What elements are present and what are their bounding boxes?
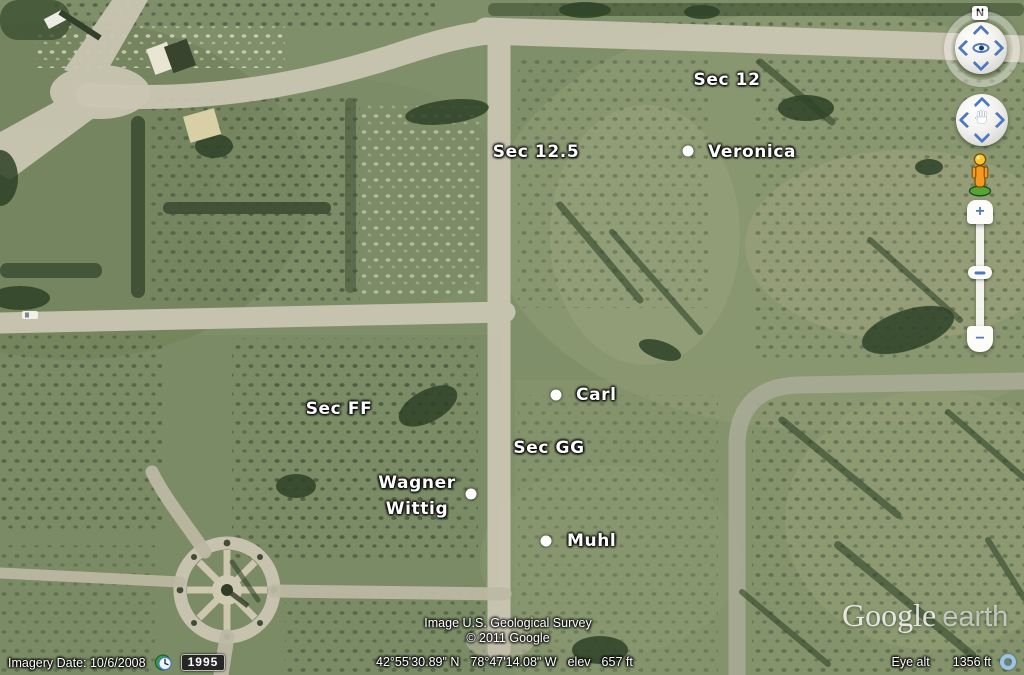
eye-alt-label: Eye alt (892, 655, 930, 669)
look-up-arrow-icon[interactable] (973, 25, 990, 42)
look-down-arrow-icon[interactable] (973, 55, 990, 72)
placemark-dot-carl[interactable] (551, 390, 562, 401)
google-earth-viewport: Sec 12 Sec 12.5 Sec FF Sec GG Veronica C… (0, 0, 1024, 675)
move-right-arrow-icon[interactable] (989, 112, 1006, 129)
imagery-year-badge[interactable]: 1995 (181, 654, 226, 671)
section-label-sec-12[interactable]: Sec 12 (693, 70, 760, 90)
look-joystick[interactable] (955, 22, 1007, 74)
zoom-slider-handle[interactable] (968, 266, 992, 279)
pan-hand-icon (973, 109, 991, 132)
eye-icon (973, 43, 990, 53)
elevation-label: elev (568, 655, 591, 669)
placemark-label-wagner-line2: Wittig (378, 496, 455, 522)
eye-alt-value: 1356 ft (953, 655, 991, 669)
longitude-value: 78°47'14.08" W (470, 655, 556, 669)
zoom-in-button[interactable]: + (967, 200, 993, 224)
move-joystick[interactable] (956, 94, 1008, 146)
watermark-brand: Google (842, 597, 936, 633)
zoom-out-button[interactable]: − (967, 326, 993, 352)
placemark-label-veronica[interactable]: Veronica (708, 142, 796, 162)
streaming-progress-icon (1000, 654, 1016, 670)
section-label-sec-ff[interactable]: Sec FF (306, 399, 373, 419)
imagery-date-text: Imagery Date: 10/6/2008 (8, 656, 146, 670)
placemark-label-wagner-line1: Wagner (378, 470, 455, 496)
status-imagery-date-group: Imagery Date: 10/6/2008 1995 (8, 654, 225, 671)
latitude-value: 42°55'30.89" N (376, 655, 459, 669)
attribution-copyright: © 2011 Google (424, 631, 591, 646)
placemark-label-wagner-wittig[interactable]: Wagner Wittig (378, 470, 455, 522)
zoom-control: + − (966, 200, 994, 352)
watermark-product: earth (942, 601, 1008, 633)
satellite-imagery[interactable] (0, 0, 1024, 675)
look-right-arrow-icon[interactable] (988, 40, 1005, 57)
placemark-label-carl[interactable]: Carl (576, 385, 617, 405)
google-earth-watermark: Googleearth (842, 597, 1008, 634)
placemark-label-muhl[interactable]: Muhl (567, 531, 616, 551)
placemark-dot-muhl[interactable] (541, 536, 552, 547)
attribution-source: Image U.S. Geological Survey (424, 616, 591, 631)
pegman-street-view-icon[interactable] (965, 150, 995, 203)
placemark-dot-veronica[interactable] (683, 146, 694, 157)
elevation-value: 657 ft (602, 655, 633, 669)
historical-imagery-clock-icon[interactable] (155, 654, 172, 671)
status-eye-alt-group: Eye alt 1356 ft (892, 654, 1016, 670)
section-label-sec-gg[interactable]: Sec GG (513, 438, 584, 458)
imagery-attribution: Image U.S. Geological Survey © 2011 Goog… (424, 616, 591, 646)
section-label-sec-12-5[interactable]: Sec 12.5 (493, 142, 580, 162)
placemark-dot-wagner-wittig[interactable] (466, 489, 477, 500)
status-coordinates-group: 42°55'30.89" N 78°47'14.08" W elev 657 f… (376, 655, 633, 669)
